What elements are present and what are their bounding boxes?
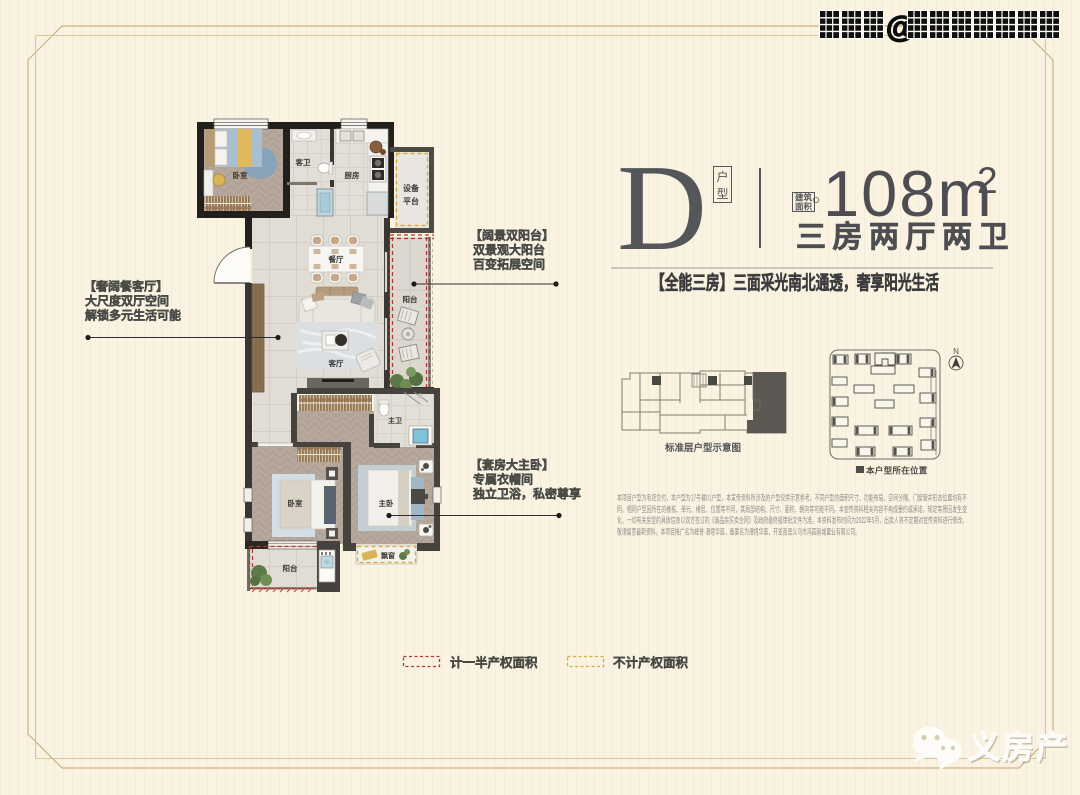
svg-text:双景观大阳台: 双景观大阳台 (473, 242, 545, 257)
svg-text:阳台: 阳台 (403, 294, 418, 304)
svg-text:飘窗: 飘窗 (381, 551, 395, 560)
svg-text:阳台: 阳台 (283, 563, 298, 573)
svg-text:大尺度双厅空间: 大尺度双厅空间 (85, 293, 169, 308)
svg-text:本项目户型为毛坯交付，本户型为17号楼01户型，本宣传资料所: 本项目户型为毛坯交付，本户型为17号楼01户型，本宣传资料所涉及的户型仅供示意参… (617, 493, 967, 503)
svg-text:化，一切有关房型的具体信息以双方签订的《商品房买卖合同》及政: 化，一切有关房型的具体信息以双方签订的《商品房买卖合同》及政府最终报审批文件为准… (617, 515, 967, 525)
svg-text:卧室: 卧室 (233, 170, 248, 180)
svg-text:标准层户型示意图: 标准层户型示意图 (664, 442, 741, 454)
svg-text:百变拓展空间: 百变拓展空间 (473, 257, 545, 272)
svg-text:本户型所在位置: 本户型所在位置 (866, 466, 928, 476)
svg-text:2: 2 (977, 160, 998, 201)
svg-text:108m: 108m (823, 157, 994, 230)
svg-text:客厅: 客厅 (328, 358, 344, 368)
svg-text:主卫: 主卫 (388, 416, 402, 425)
svg-text:解锁多元生活可能: 解锁多元生活可能 (85, 308, 181, 323)
svg-text:型: 型 (716, 187, 728, 201)
svg-text:独立卫浴，私密尊享: 独立卫浴，私密尊享 (472, 486, 581, 501)
svg-text:主卧: 主卧 (379, 498, 394, 508)
svg-text:厨房: 厨房 (345, 170, 360, 180)
svg-text:【套房大主卧】: 【套房大主卧】 (470, 457, 554, 472)
svg-text:专属衣帽间: 专属衣帽间 (473, 472, 533, 487)
svg-text:餐厅: 餐厅 (328, 254, 344, 264)
svg-text:平台: 平台 (403, 196, 419, 206)
svg-text:敬请留意最新资料。本项目推广名为峰誉·澄境华庭，备案名为澄境: 敬请留意最新资料。本项目推广名为峰誉·澄境华庭，备案名为澄境华庭，开发商是义乌市… (617, 526, 860, 536)
svg-text:面积: 面积 (795, 202, 813, 212)
svg-text:卧室: 卧室 (288, 498, 303, 508)
svg-text:设备: 设备 (403, 183, 420, 193)
svg-text:计一半产权面积: 计一半产权面积 (450, 655, 538, 670)
svg-text:不计产权面积: 不计产权面积 (613, 655, 689, 670)
svg-text:N: N (953, 347, 959, 356)
svg-text:【奢阔餐客厅】: 【奢阔餐客厅】 (84, 279, 168, 294)
svg-text:【全能三房】三面采光南北通透，奢享阳光生活: 【全能三房】三面采光南北通透，奢享阳光生活 (651, 271, 939, 294)
svg-text:同，相同户型因所在的楼栋、单元、楼层、位置等不同，其局部结构: 同，相同户型因所在的楼栋、单元、楼层、位置等不同，其局部结构、尺寸、面积、朝向等… (617, 504, 967, 514)
svg-text:三房两厅两卫: 三房两厅两卫 (796, 221, 1015, 254)
svg-text:义房产: 义房产 (968, 729, 1070, 765)
svg-text:户: 户 (716, 169, 728, 184)
svg-text:客卫: 客卫 (295, 157, 311, 167)
svg-text:【阔景双阳台】: 【阔景双阳台】 (470, 228, 554, 243)
svg-text:D: D (617, 139, 707, 276)
